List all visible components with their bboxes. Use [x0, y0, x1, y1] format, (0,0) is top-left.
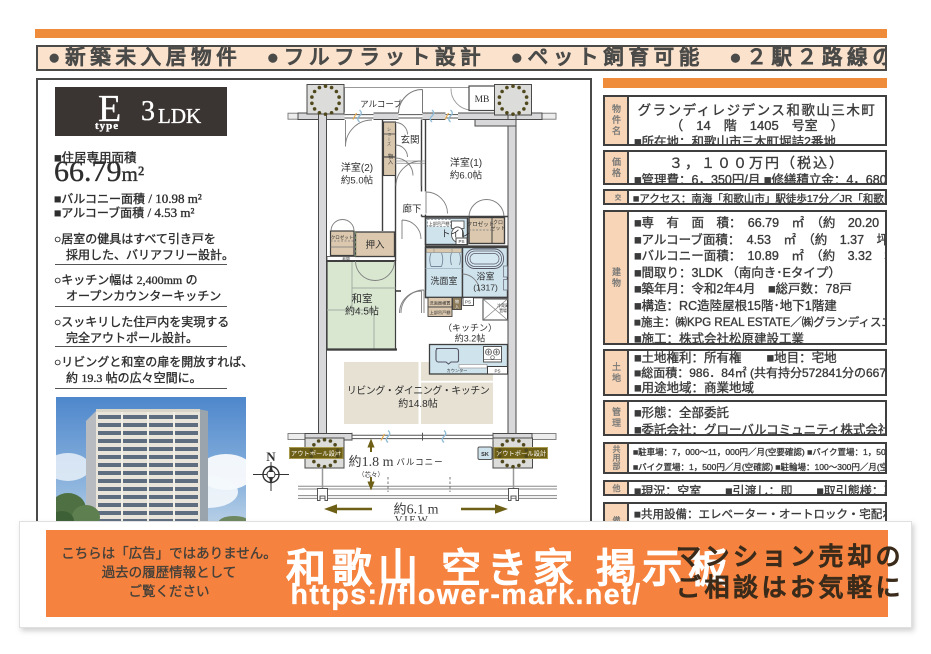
svg-text:カウンター: カウンター — [447, 367, 468, 374]
svg-text:洋室(2): 洋室(2) — [341, 161, 373, 174]
svg-text:アウトポール設計: アウトポール設計 — [496, 449, 547, 458]
svg-text:バルコニー: バルコニー — [396, 457, 443, 467]
svg-text:冷蔵庫: 冷蔵庫 — [497, 303, 509, 308]
svg-text:玄関: 玄関 — [400, 134, 419, 146]
svg-text:約5.0帖: 約5.0帖 — [341, 175, 374, 187]
svg-text:置場: 置場 — [499, 308, 507, 313]
svg-text:PS: PS — [458, 239, 464, 244]
svg-text:洋室(1): 洋室(1) — [450, 156, 482, 169]
svg-text:和室: 和室 — [352, 292, 373, 305]
svg-text:リビング・ダイニング・キッチン: リビング・ダイニング・キッチン — [347, 384, 490, 397]
svg-text:N: N — [266, 449, 276, 464]
svg-text:洗面室: 洗面室 — [430, 275, 457, 286]
svg-text:クロゼット: クロゼット — [331, 234, 354, 241]
svg-text:（芯々）: （芯々） — [358, 470, 384, 479]
svg-text:洗面器横置: 洗面器横置 — [430, 300, 451, 307]
svg-text:約4.5帖: 約4.5帖 — [345, 305, 379, 318]
svg-text:入: 入 — [455, 304, 459, 309]
svg-text:アウトポール設計: アウトポール設計 — [291, 449, 342, 458]
svg-text:SK: SK — [481, 452, 489, 458]
svg-text:MB: MB — [475, 95, 490, 105]
svg-text:約1.8 m: 約1.8 m — [349, 454, 394, 470]
svg-text:押入: 押入 — [365, 239, 385, 251]
svg-text:ゼット: ゼット — [490, 225, 505, 232]
svg-text:浴室: 浴室 — [476, 271, 494, 282]
svg-text:物入: 物入 — [387, 152, 394, 165]
svg-text:約3.2帖: 約3.2帖 — [455, 333, 486, 344]
svg-text:(1317): (1317) — [473, 283, 498, 293]
svg-text:上部吊戸棚: 上部吊戸棚 — [430, 309, 451, 316]
svg-text:約6.0帖: 約6.0帖 — [450, 170, 483, 182]
svg-text:約14.8帖: 約14.8帖 — [398, 397, 437, 410]
svg-text:（キッチン）: （キッチン） — [443, 323, 497, 333]
svg-text:シューズ: シューズ — [386, 127, 392, 146]
svg-text:上部吊戸棚: 上部吊戸棚 — [429, 220, 450, 227]
svg-text:PS: PS — [465, 300, 471, 305]
svg-text:アルコーブ: アルコーブ — [360, 99, 402, 109]
svg-text:PS: PS — [494, 368, 500, 373]
svg-text:廊下: 廊下 — [402, 203, 421, 215]
